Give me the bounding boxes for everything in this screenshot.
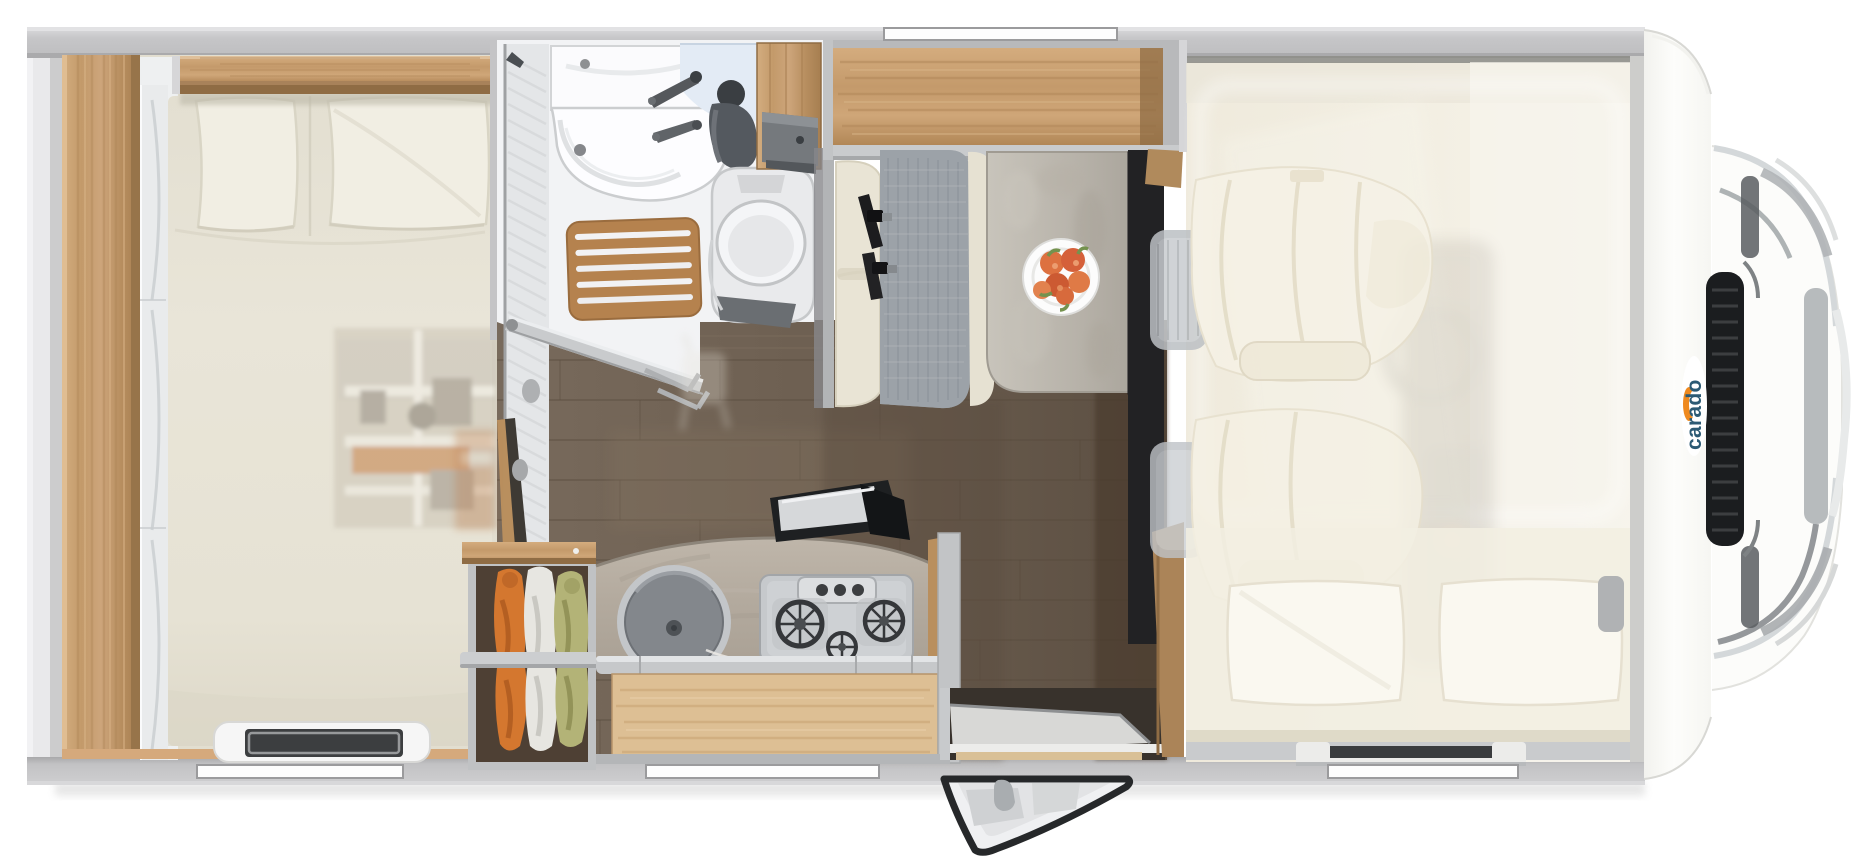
svg-text:carado: carado — [1683, 379, 1706, 450]
